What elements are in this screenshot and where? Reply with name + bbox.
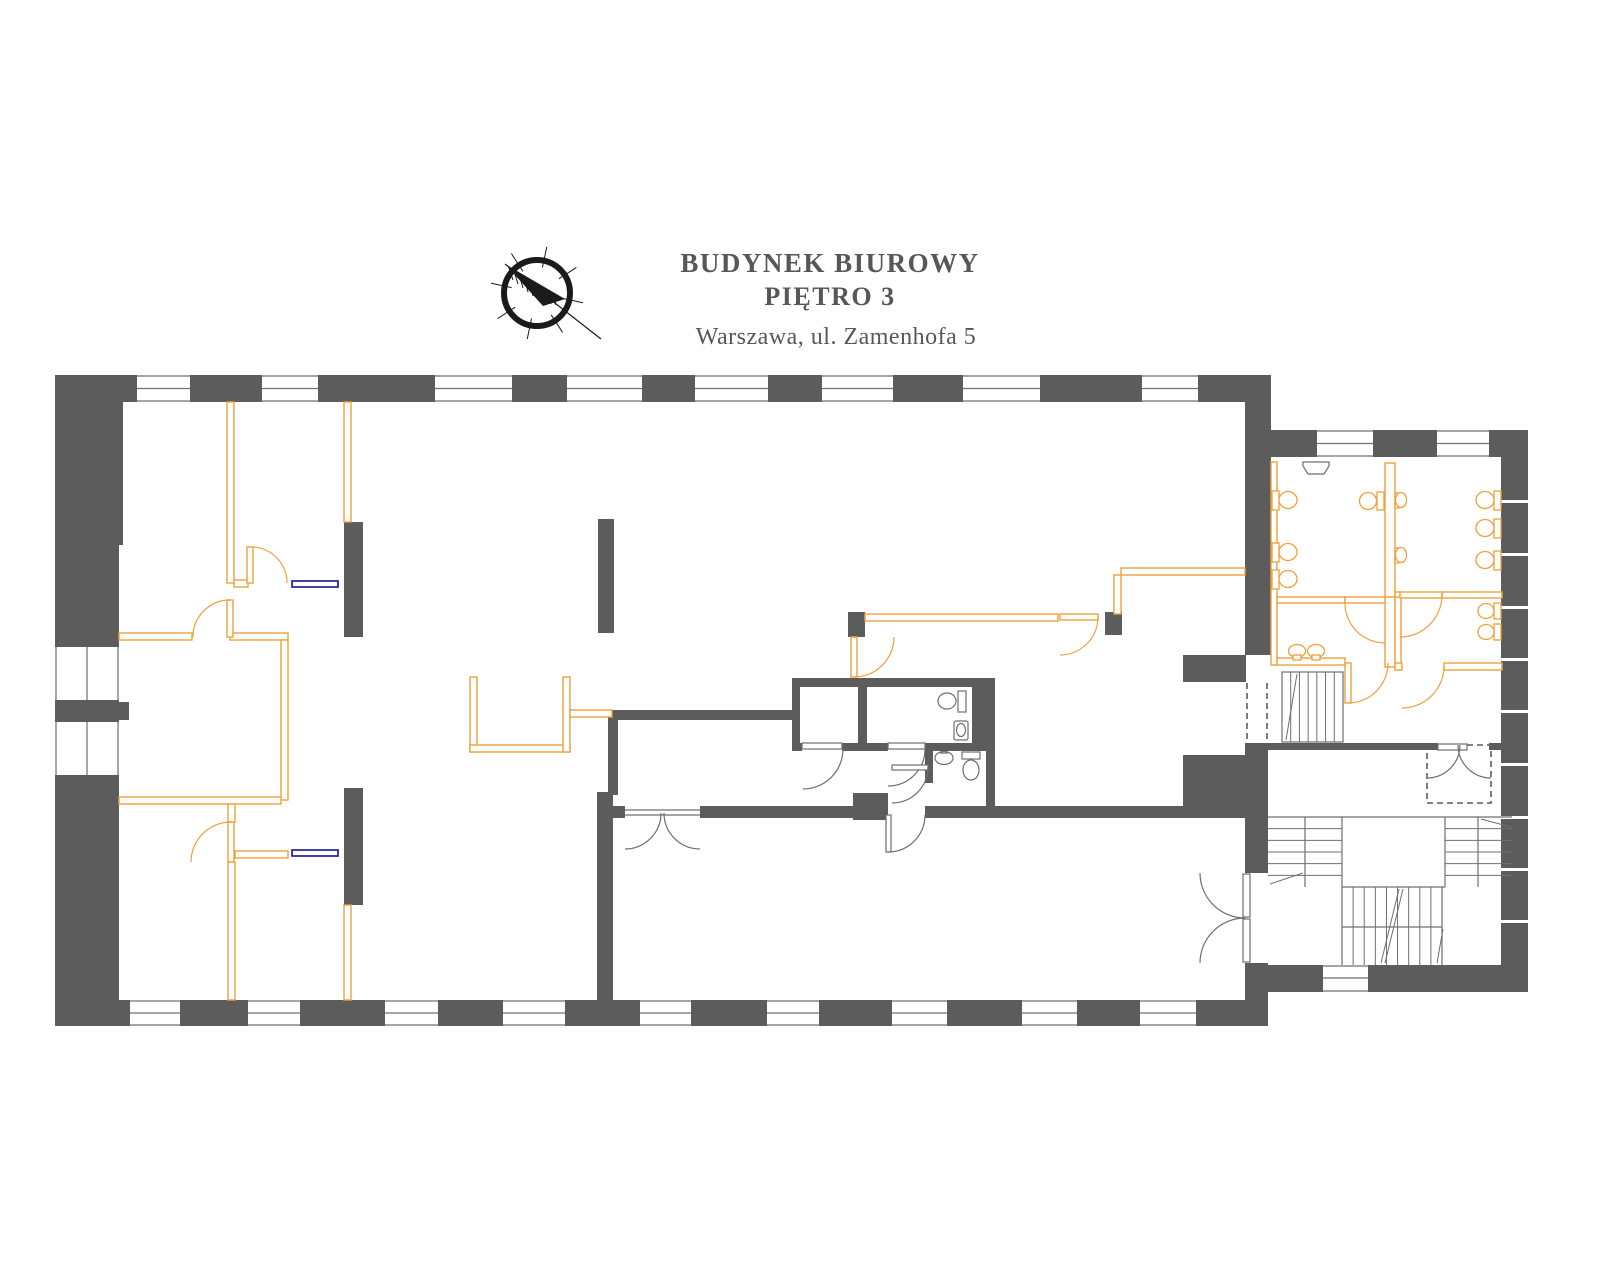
sink-icon [954,721,968,740]
partition [1385,597,1395,667]
door [1345,663,1388,703]
west-wall-corner-thick [55,375,123,545]
door [1400,592,1442,637]
room-wall-vertical-lower [597,792,613,1005]
partition [1395,663,1402,670]
wc-block-left [792,687,800,750]
window [503,1000,565,1026]
window [892,1000,947,1026]
corridor-south-wall-a [613,806,625,818]
south-wall-windows [130,1000,1196,1026]
counter-right [563,677,570,752]
window [55,722,119,775]
partition [1121,568,1245,575]
partition [281,640,288,800]
partition [1114,575,1121,614]
partition [1277,658,1345,665]
urinal-icon [1395,548,1407,564]
partition [227,402,234,583]
southwest-corner-block [57,977,113,1022]
double-door-annex [1200,873,1270,963]
partition [119,633,192,640]
east-wall-upper [1245,402,1271,655]
door [1060,614,1098,655]
partition [344,402,351,522]
annex-interior-wall [1268,743,1438,750]
partition [865,614,1058,621]
passage-dashed-opening [1247,683,1267,743]
window [130,1000,180,1026]
east-wall-mid [1245,743,1268,873]
door [193,600,233,637]
partition [1277,597,1345,603]
double-door [625,810,700,849]
stairs [1268,672,1512,965]
anchor-block-west [848,612,865,637]
orange-partitions [119,402,1245,1000]
stair-flight-bottom [1353,887,1431,965]
west-wall-pier [55,700,119,722]
floor-plan-drawing: BUDYNEK BIUROWY PIĘTRO 3 Warszawa, ul. Z… [0,0,1600,1280]
partition [234,580,248,587]
toilet-icon [1360,492,1385,510]
window [1140,1000,1196,1026]
stair-arrow [1286,674,1297,740]
anchor-block-east [1105,612,1122,635]
corridor-pillar [853,793,888,820]
window [1437,430,1489,457]
floor-title: PIĘTRO 3 [764,282,895,311]
gray-doors [625,743,1270,963]
counter-bottom [470,745,570,752]
west-wall-pier-stub [119,702,129,720]
partition-window-markers [292,581,338,856]
window [435,375,512,402]
partition [1385,463,1395,597]
annex-orange-partitions [1271,462,1502,670]
stair-break-line [1381,889,1399,963]
wc-block-mid [858,687,867,750]
window [1022,1000,1077,1026]
window [385,1000,438,1026]
building-title: BUDYNEK BIUROWY [680,248,979,278]
floor-plan-page: BUDYNEK BIUROWY PIĘTRO 3 Warszawa, ul. Z… [0,0,1600,1280]
corridor-south-wall-b [700,806,853,818]
door [191,822,234,862]
toilet-icon [1478,624,1501,640]
partition [235,851,288,858]
partition [228,862,235,1000]
room-wall-vertical-upper [608,710,618,795]
window [1323,965,1368,992]
door [1345,597,1385,643]
annex-north-wall [1271,430,1528,457]
window [1317,430,1373,457]
exterior-walls [55,375,1271,1026]
stair-break-line [1385,889,1403,963]
wc-block-top [792,678,995,687]
east-wall-stub [1183,655,1246,682]
wc-divider-a [792,743,802,751]
window [695,375,768,402]
wc-divider-b [842,743,888,751]
door [1402,666,1444,708]
stair-arrow [1270,873,1303,884]
window [767,1000,819,1026]
compass-rose-icon [491,247,601,339]
wc-divider-c [925,743,995,751]
partition [228,804,235,822]
counter-left [470,677,477,752]
window [963,375,1040,402]
toilet-icon [1476,519,1501,538]
counter-stub [570,710,612,717]
title-block: BUDYNEK BIUROWY PIĘTRO 3 Warszawa, ul. Z… [680,248,979,350]
toilet-icon [962,752,980,780]
door [802,743,843,789]
partition [1442,592,1502,598]
urinal-icon [1395,493,1407,509]
sink-icon [1303,462,1329,474]
small-stair-treads [1291,672,1335,742]
window [640,1000,691,1026]
elevator-door-leaf [1438,744,1467,750]
toilet-icon [1272,570,1297,589]
interior-walls [344,519,1245,1005]
window [567,375,642,402]
window [248,1000,300,1026]
toilet-icon [1476,551,1501,570]
address-line: Warszawa, ul. Zamenhofa 5 [696,324,976,350]
pier-left-lower [344,788,363,905]
wc-lower-right-wall [986,751,995,813]
toilet-icon [1478,603,1501,619]
pier-left-upper [344,522,363,637]
door [892,765,928,803]
window [137,375,190,402]
partition [1444,663,1502,670]
door [851,637,894,677]
window [1142,375,1198,402]
partition [119,797,281,804]
corridor-wall-top [612,710,792,720]
window [262,375,318,402]
partition [230,633,288,640]
window [55,647,119,700]
door [886,815,925,852]
door [247,547,287,583]
window [822,375,893,402]
toilet-icon [1272,543,1297,562]
toilet-icon [938,691,966,712]
internal-window [292,581,338,587]
central-pillar [598,519,614,633]
corridor-south-wall-d [1183,806,1245,818]
sink-icon [935,752,953,765]
corridor-south-wall-c [925,806,1183,818]
wc-block-right [972,678,995,750]
toilet-icon [1476,491,1501,510]
north-wall [55,375,1271,402]
partition [1395,597,1401,670]
elevator [1427,744,1491,803]
partition [344,905,351,1000]
internal-window [292,850,338,856]
annex-south-wall [1245,965,1528,992]
toilet-icon [1272,491,1297,510]
